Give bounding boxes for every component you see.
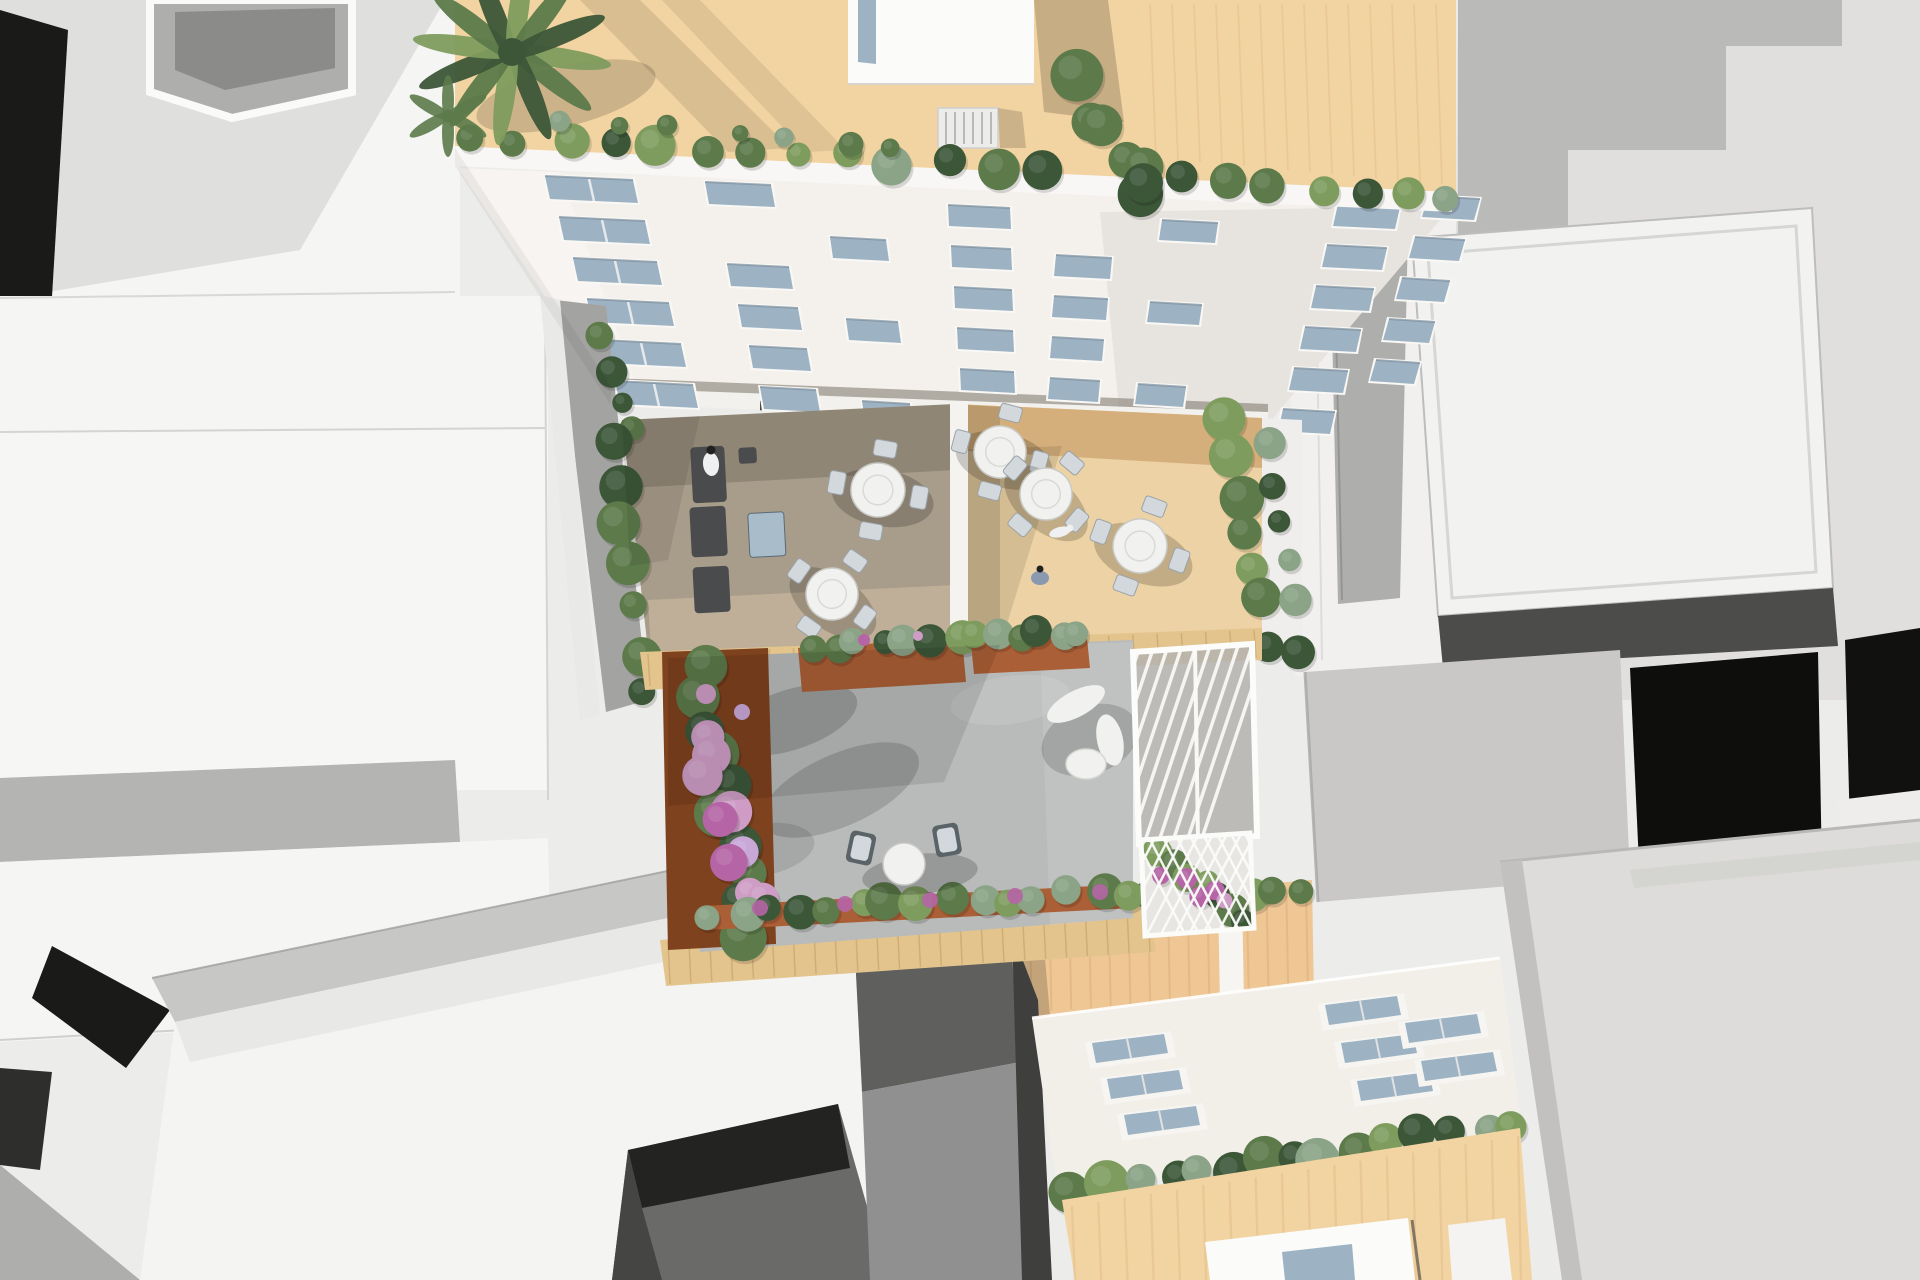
aerial-render-scene (0, 0, 1920, 1280)
roof-penthouse (848, 0, 1034, 84)
render-canvas (0, 0, 1920, 1280)
stair-bulkhead (938, 108, 1026, 148)
